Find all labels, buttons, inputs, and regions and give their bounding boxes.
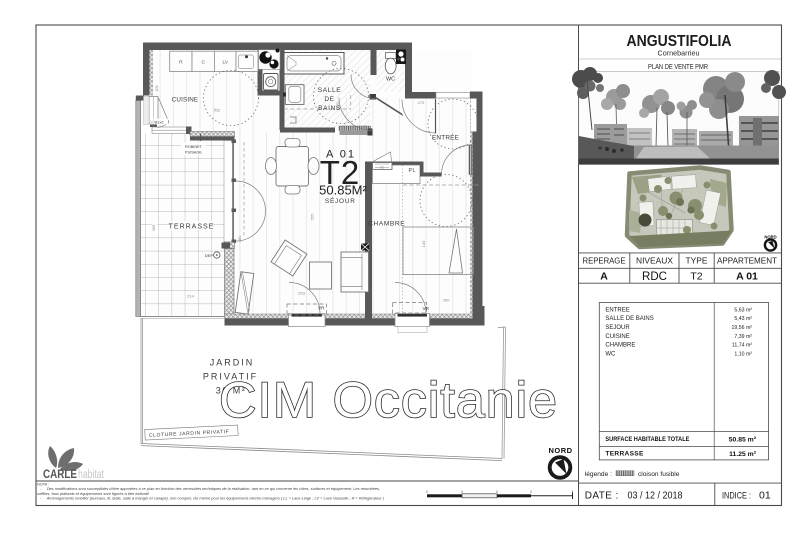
- svg-text:CHAMBRE: CHAMBRE: [605, 343, 635, 349]
- svg-text:- Aménagements mobilier (b: - Aménagements mobilier (bureaux, lit, t…: [40, 496, 385, 501]
- svg-text:T2: T2: [690, 271, 702, 283]
- svg-text:SURFACE HABITABLE TOTALE: SURFACE HABITABLE TOTALE: [605, 436, 690, 443]
- svg-text:TERRASSE: TERRASSE: [169, 224, 215, 231]
- svg-text:C: C: [201, 60, 205, 66]
- svg-text:ENTRÉE: ENTRÉE: [432, 133, 459, 142]
- svg-text:CUISINE: CUISINE: [172, 97, 199, 104]
- svg-text:260: 260: [443, 298, 450, 303]
- svg-text:TERRASSE: TERRASSE: [605, 451, 644, 458]
- svg-text:1,10 m²: 1,10 m²: [734, 351, 752, 357]
- svg-text:275: 275: [418, 100, 425, 105]
- svg-text:11.25 m²: 11.25 m²: [729, 451, 757, 458]
- svg-text:CARLE: CARLE: [43, 469, 77, 481]
- svg-text:APPARTEMENT: APPARTEMENT: [717, 256, 777, 265]
- svg-text:LV: LV: [222, 60, 228, 66]
- svg-text:PUISAGE: PUISAGE: [185, 151, 202, 155]
- svg-text:50.85 m²: 50.85 m²: [729, 437, 757, 444]
- svg-text:légende :: légende :: [585, 471, 612, 478]
- svg-text:5,43 m²: 5,43 m²: [734, 316, 752, 322]
- svg-text:7,39 m²: 7,39 m²: [734, 334, 752, 340]
- svg-text:263: 263: [298, 291, 305, 296]
- svg-text:ROBINET: ROBINET: [185, 145, 203, 149]
- svg-text:NORD: NORD: [548, 446, 572, 455]
- svg-text:01: 01: [759, 490, 771, 502]
- svg-text:50.85M²: 50.85M²: [319, 183, 367, 198]
- svg-text:140: 140: [421, 240, 426, 247]
- svg-text:SEJOUR: SEJOUR: [605, 325, 630, 331]
- svg-text:SALLE: SALLE: [318, 87, 342, 94]
- svg-text:105: 105: [155, 86, 159, 92]
- svg-text:SALLE DE BAINS: SALLE DE BAINS: [605, 316, 653, 322]
- svg-text:220: 220: [335, 101, 340, 108]
- svg-text:PL: PL: [409, 168, 416, 174]
- svg-text:NIVEAUX: NIVEAUX: [636, 256, 674, 265]
- svg-text:cloison fusible: cloison fusible: [638, 471, 680, 478]
- svg-text:TYPE: TYPE: [686, 256, 708, 265]
- svg-text:A: A: [600, 271, 608, 283]
- svg-text:180: 180: [237, 235, 242, 242]
- svg-text:A 01: A 01: [736, 271, 758, 283]
- svg-text:03 / 12 / 2018: 03 / 12 / 2018: [628, 490, 683, 501]
- svg-text:356: 356: [151, 224, 156, 231]
- svg-text:VR: VR: [423, 306, 430, 311]
- svg-text:R: R: [179, 60, 183, 66]
- svg-text:CUISINE: CUISINE: [605, 334, 629, 340]
- svg-text:555: 555: [310, 213, 315, 220]
- svg-text:11,74 m²: 11,74 m²: [732, 343, 752, 349]
- svg-text:DATE :: DATE :: [585, 490, 619, 501]
- svg-text:INDICE :: INDICE :: [722, 491, 751, 502]
- svg-text:VR: VR: [318, 306, 325, 311]
- svg-text:WC: WC: [605, 351, 616, 357]
- svg-text:PLAN DE VENTE PMR: PLAN DE VENTE PMR: [648, 62, 708, 71]
- svg-text:RDC: RDC: [642, 271, 667, 283]
- svg-text:DEP: DEP: [205, 253, 214, 258]
- svg-text:Cornebarrieu: Cornebarrieu: [658, 49, 700, 58]
- svg-text:JARDIN: JARDIN: [210, 358, 255, 368]
- svg-text:DE: DE: [324, 96, 334, 103]
- svg-text:5,63 m²: 5,63 m²: [734, 307, 752, 313]
- svg-text:ENTREE: ENTREE: [605, 307, 629, 313]
- svg-text:CHAMBRE: CHAMBRE: [368, 221, 405, 228]
- svg-text:19,56 m²: 19,56 m²: [732, 325, 753, 331]
- svg-text:ANGUSTIFOLIA: ANGUSTIFOLIA: [627, 33, 732, 50]
- svg-text:214: 214: [187, 294, 194, 299]
- svg-text:habitat: habitat: [78, 469, 105, 481]
- svg-text:WC: WC: [386, 77, 395, 83]
- svg-text:SÉJOUR: SÉJOUR: [325, 196, 356, 205]
- svg-text:CIM Occitanie: CIM Occitanie: [219, 372, 558, 428]
- svg-text:V1x2: V1x2: [154, 119, 164, 124]
- svg-text:31: 31: [380, 165, 384, 169]
- svg-text:REPERAGE: REPERAGE: [583, 256, 626, 265]
